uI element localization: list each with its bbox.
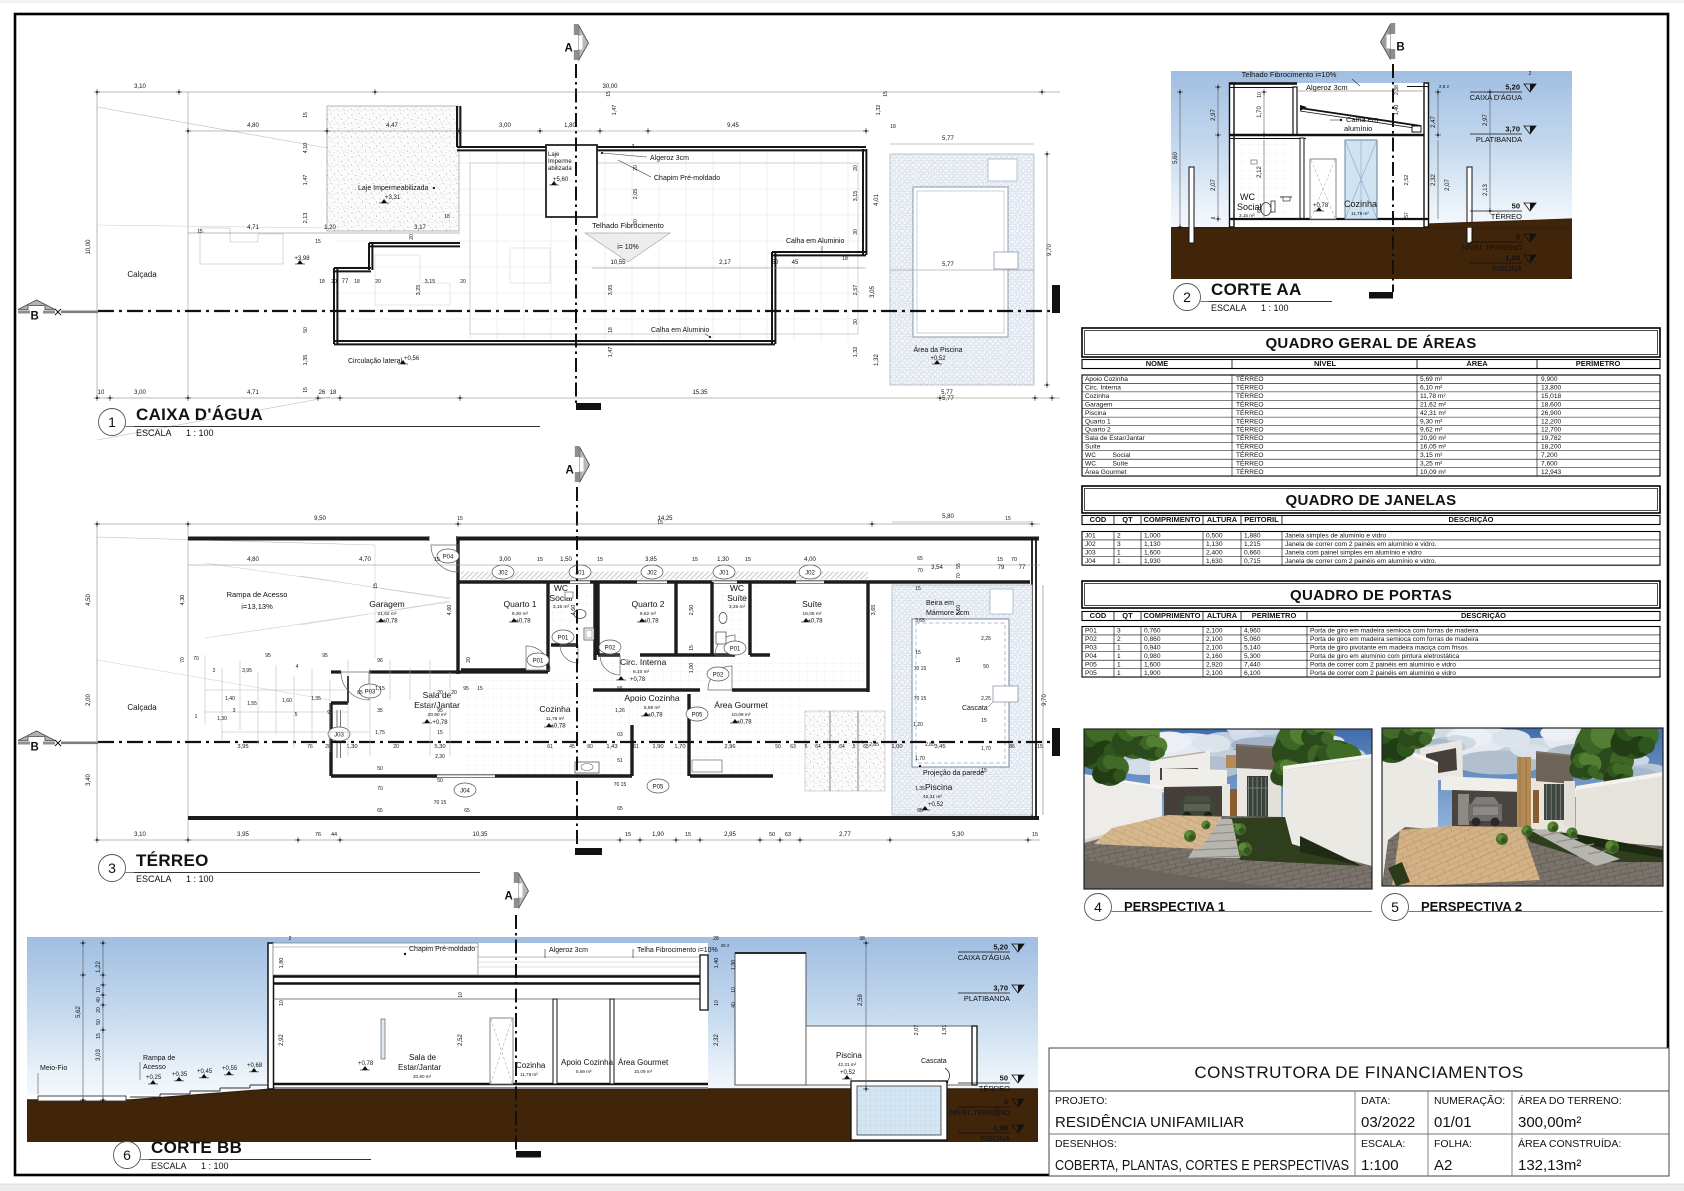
- svg-text:0,980: 0,980: [1144, 653, 1161, 660]
- svg-text:10,09 m²: 10,09 m²: [634, 1069, 653, 1074]
- svg-text:1,930: 1,930: [1144, 558, 1161, 565]
- svg-text:18: 18: [354, 279, 360, 285]
- svg-text:10,09 m²: 10,09 m²: [1420, 469, 1447, 476]
- svg-text:Calha em Aluminio: Calha em Aluminio: [651, 327, 709, 334]
- svg-text:77: 77: [1019, 565, 1026, 571]
- svg-text:Janela de correr com 2 painéis: Janela de correr com 2 painéis em alumín…: [1285, 541, 1437, 548]
- svg-text:3,03: 3,03: [96, 1049, 102, 1061]
- svg-text:J02: J02: [1085, 541, 1096, 548]
- svg-text:1,80: 1,80: [279, 958, 285, 969]
- svg-text:Telha Fibrocimento i=10%: Telha Fibrocimento i=10%: [637, 947, 718, 954]
- svg-text:5: 5: [853, 744, 856, 750]
- svg-text:16,05 m²: 16,05 m²: [803, 611, 822, 617]
- svg-text:2,13: 2,13: [1483, 184, 1489, 196]
- svg-text:6,10 m²: 6,10 m²: [1420, 385, 1443, 392]
- svg-text:CAIXA D'ÁGUA: CAIXA D'ÁGUA: [136, 405, 263, 424]
- svg-text:J01: J01: [719, 570, 729, 576]
- svg-text:03/2022: 03/2022: [1361, 1114, 1415, 1131]
- svg-text:TÉRREO: TÉRREO: [1236, 425, 1263, 434]
- svg-text:NÍVEL TERRENO: NÍVEL TERRENO: [1462, 243, 1522, 252]
- svg-text:2,47: 2,47: [1431, 116, 1437, 128]
- svg-text:5: 5: [829, 744, 832, 750]
- svg-text:9,30 m²: 9,30 m²: [512, 611, 529, 617]
- svg-text:4,47: 4,47: [386, 123, 398, 129]
- svg-text:P05: P05: [653, 784, 664, 790]
- svg-text:3,40: 3,40: [86, 774, 92, 786]
- svg-text:1,35: 1,35: [311, 696, 321, 702]
- svg-text:9,900: 9,900: [1541, 376, 1558, 383]
- svg-text:2,97: 2,97: [1211, 109, 1217, 121]
- svg-text:2: 2: [1117, 533, 1121, 540]
- svg-text:50: 50: [303, 327, 309, 333]
- svg-text:1,215: 1,215: [1244, 541, 1261, 548]
- svg-text:PLATIBANDA: PLATIBANDA: [964, 994, 1010, 1003]
- svg-text:Sala de Estar/Jantar: Sala de Estar/Jantar: [1085, 435, 1146, 442]
- svg-text:63: 63: [785, 832, 791, 838]
- svg-text:3,95: 3,95: [242, 668, 252, 674]
- svg-text:60: 60: [1257, 207, 1263, 213]
- svg-text:Garagem: Garagem: [369, 599, 404, 609]
- svg-text:2,12: 2,12: [1257, 166, 1263, 178]
- svg-text:P02: P02: [1085, 636, 1097, 643]
- svg-text:Porta de giro em madeira semio: Porta de giro em madeira semioca com for…: [1310, 628, 1479, 635]
- svg-text:15,018: 15,018: [1541, 393, 1562, 400]
- svg-text:01/01: 01/01: [1434, 1114, 1472, 1131]
- svg-text:1,000: 1,000: [1144, 533, 1161, 540]
- svg-text:2,07: 2,07: [1445, 179, 1451, 191]
- svg-text:PLATIBANDA: PLATIBANDA: [1476, 135, 1522, 144]
- svg-text:CAIXA D'ÁGUA: CAIXA D'ÁGUA: [1470, 93, 1522, 102]
- svg-text:Quarto 2: Quarto 2: [1085, 427, 1111, 434]
- svg-text:2,100: 2,100: [1206, 670, 1223, 677]
- svg-text:2,38: 2,38: [1394, 85, 1400, 95]
- svg-text:1,47: 1,47: [608, 347, 614, 358]
- svg-text:Quarto 2: Quarto 2: [631, 599, 664, 609]
- svg-text:1 : 100: 1 : 100: [1261, 303, 1289, 313]
- svg-text:Área Gourmet: Área Gourmet: [618, 1058, 669, 1067]
- svg-text:Telhado Fibrocimento: Telhado Fibrocimento: [592, 221, 664, 230]
- svg-text:6: 6: [123, 1147, 131, 1163]
- svg-text:20: 20: [633, 165, 639, 171]
- svg-text:1,70: 1,70: [915, 756, 925, 762]
- svg-text:18,200: 18,200: [1541, 444, 1562, 451]
- svg-text:3,05: 3,05: [870, 286, 876, 298]
- svg-text:CÓD: CÓD: [1090, 611, 1107, 620]
- svg-text:QUADRO DE PORTAS: QUADRO DE PORTAS: [1290, 587, 1452, 604]
- svg-text:1,30: 1,30: [717, 557, 729, 563]
- svg-text:0,760: 0,760: [1144, 628, 1161, 635]
- svg-text:+0,78: +0,78: [643, 619, 659, 625]
- svg-text:1: 1: [1117, 558, 1121, 565]
- svg-text:Rampa de Acesso: Rampa de Acesso: [227, 590, 288, 599]
- svg-text:76: 76: [307, 744, 313, 750]
- svg-text:85: 85: [357, 690, 363, 696]
- svg-text:0,660: 0,660: [1244, 550, 1261, 557]
- svg-text:2,59: 2,59: [858, 994, 864, 1006]
- svg-text:1,80: 1,80: [564, 123, 576, 129]
- svg-text:30: 30: [853, 319, 859, 325]
- svg-text:0,860: 0,860: [1144, 636, 1161, 643]
- svg-text:10: 10: [1257, 92, 1263, 98]
- svg-text:J01: J01: [1085, 533, 1096, 540]
- svg-text:abilizada: abilizada: [548, 166, 572, 172]
- svg-text:Janela com painel simples em a: Janela com painel simples em alumínio e …: [1285, 550, 1422, 557]
- svg-text:42,31 m²: 42,31 m²: [923, 794, 942, 800]
- svg-text:15: 15: [625, 832, 631, 838]
- svg-text:50: 50: [437, 778, 443, 784]
- svg-text:45: 45: [792, 260, 799, 266]
- svg-text:1,55: 1,55: [247, 701, 257, 707]
- svg-text:15: 15: [981, 718, 987, 724]
- svg-text:3,10: 3,10: [134, 84, 146, 90]
- svg-text:WC Social: WC Social: [1085, 452, 1131, 459]
- svg-text:Quarto 1: Quarto 1: [503, 599, 536, 609]
- svg-text:+0,78: +0,78: [630, 677, 646, 683]
- svg-text:9,62 m²: 9,62 m²: [640, 611, 657, 617]
- svg-text:Chapim Pré-moldado: Chapim Pré-moldado: [409, 946, 475, 953]
- svg-text:0: 0: [1516, 233, 1520, 242]
- svg-text:11,78 m²: 11,78 m²: [1420, 393, 1446, 400]
- svg-text:20: 20: [393, 744, 399, 750]
- svg-text:3,70: 3,70: [993, 984, 1008, 993]
- svg-text:61: 61: [547, 744, 553, 750]
- svg-text:Imperme: Imperme: [548, 159, 572, 165]
- svg-text:+0,78: +0,78: [550, 724, 566, 730]
- svg-text:3,95: 3,95: [237, 832, 249, 838]
- svg-text:40: 40: [96, 997, 102, 1003]
- svg-text:15: 15: [1005, 516, 1011, 522]
- svg-text:3,15: 3,15: [853, 191, 859, 202]
- svg-text:FOLHA:: FOLHA:: [1434, 1138, 1472, 1150]
- svg-text:50: 50: [1000, 1074, 1008, 1083]
- svg-text:Laje: Laje: [548, 152, 560, 158]
- svg-text:10: 10: [279, 1000, 285, 1006]
- svg-text:Janela de correr com 2 painéis: Janela de correr com 2 painéis em alumín…: [1285, 558, 1437, 565]
- svg-text:76: 76: [315, 832, 321, 838]
- svg-text:1 : 100: 1 : 100: [201, 1161, 229, 1171]
- svg-text:NOME: NOME: [1146, 359, 1169, 368]
- svg-text:1,32: 1,32: [876, 105, 882, 116]
- svg-text:3,95: 3,95: [237, 744, 248, 750]
- svg-text:1: 1: [195, 714, 198, 720]
- svg-text:3,15 m²: 3,15 m²: [553, 604, 570, 610]
- svg-text:7,600: 7,600: [1541, 460, 1558, 467]
- svg-text:15: 15: [1037, 744, 1043, 750]
- svg-text:11,78 m²: 11,78 m²: [1351, 211, 1369, 216]
- svg-text:70: 70: [180, 657, 186, 663]
- svg-text:1,20: 1,20: [913, 722, 923, 728]
- svg-text:3: 3: [632, 144, 635, 150]
- svg-text:Porta de correr com 2 painéis: Porta de correr com 2 painéis em alumíni…: [1310, 661, 1456, 668]
- svg-text:alumínio: alumínio: [1344, 124, 1372, 133]
- svg-text:1,75: 1,75: [375, 730, 385, 736]
- svg-text:2,92: 2,92: [279, 1034, 285, 1046]
- svg-text:2,05: 2,05: [633, 189, 639, 200]
- svg-text:TÉRREO: TÉRREO: [1236, 391, 1263, 400]
- svg-text:65: 65: [464, 808, 470, 814]
- svg-text:20: 20: [633, 219, 639, 225]
- svg-text:J03: J03: [334, 732, 344, 738]
- svg-text:0,715: 0,715: [1244, 558, 1261, 565]
- svg-text:PERÍMETRO: PERÍMETRO: [1576, 359, 1621, 368]
- svg-text:64: 64: [839, 744, 845, 750]
- svg-text:50: 50: [983, 664, 989, 670]
- svg-text:TÉRREO: TÉRREO: [1236, 442, 1263, 451]
- svg-text:+0,55: +0,55: [222, 1066, 238, 1072]
- svg-text:+0,78: +0,78: [432, 720, 448, 726]
- svg-text:Cozinha: Cozinha: [539, 704, 570, 714]
- svg-text:3,00: 3,00: [499, 557, 511, 563]
- svg-text:5,77: 5,77: [942, 136, 954, 142]
- svg-text:18,600: 18,600: [1541, 401, 1562, 408]
- svg-text:96: 96: [377, 658, 383, 664]
- svg-text:15: 15: [915, 650, 921, 656]
- svg-text:A: A: [504, 891, 512, 903]
- svg-text:+0,52: +0,52: [840, 1070, 856, 1076]
- svg-text:7,200: 7,200: [1541, 452, 1558, 459]
- svg-text:ESCALA: ESCALA: [151, 1161, 187, 1171]
- svg-text:2,8 2: 2,8 2: [1439, 84, 1450, 89]
- svg-text:2,95: 2,95: [724, 832, 736, 838]
- svg-text:3,25: 3,25: [416, 285, 422, 296]
- svg-text:3,65: 3,65: [871, 605, 877, 616]
- svg-text:2,85: 2,85: [869, 742, 879, 748]
- svg-text:86: 86: [1009, 744, 1015, 750]
- svg-text:70: 70: [956, 573, 962, 579]
- svg-text:CORTE BB: CORTE BB: [151, 1138, 242, 1157]
- svg-text:1: 1: [1117, 661, 1121, 668]
- svg-text:QT: QT: [1122, 515, 1133, 524]
- svg-text:1,52: 1,52: [995, 1107, 1001, 1118]
- svg-text:2,100: 2,100: [1206, 628, 1223, 635]
- svg-text:1,600: 1,600: [1144, 550, 1161, 557]
- svg-text:10: 10: [458, 992, 464, 998]
- svg-text:85: 85: [917, 808, 923, 814]
- svg-text:Calha em: Calha em: [1346, 115, 1378, 124]
- svg-text:Área da Piscina: Área da Piscina: [913, 345, 962, 354]
- svg-text:1,70: 1,70: [981, 746, 991, 752]
- svg-text:TÉRREO: TÉRREO: [1236, 458, 1263, 467]
- svg-text:4,71: 4,71: [247, 225, 259, 231]
- svg-text:15: 15: [315, 239, 321, 245]
- svg-text:70: 70: [1011, 557, 1017, 563]
- svg-text:5,69 m²: 5,69 m²: [644, 705, 661, 711]
- svg-text:1,32: 1,32: [874, 354, 880, 366]
- svg-text:ESCALA: ESCALA: [136, 428, 172, 438]
- svg-text:20: 20: [451, 690, 457, 696]
- svg-text:5,140: 5,140: [1244, 645, 1261, 652]
- svg-text:Algeroz 3cm: Algeroz 3cm: [549, 947, 588, 954]
- svg-text:+0,78: +0,78: [647, 713, 663, 719]
- svg-text:21,62 m²: 21,62 m²: [378, 611, 397, 617]
- svg-text:Telhado Fibrocimento i=10%: Telhado Fibrocimento i=10%: [1242, 70, 1337, 79]
- svg-text:10,00: 10,00: [86, 239, 92, 255]
- svg-text:65: 65: [863, 744, 869, 750]
- svg-text:TÉRREO: TÉRREO: [1491, 212, 1522, 221]
- svg-text:1,91: 1,91: [942, 1025, 948, 1036]
- svg-text:Circulação lateral: Circulação lateral: [348, 358, 403, 365]
- svg-text:TÉRREO: TÉRREO: [1236, 467, 1263, 476]
- svg-text:2,400: 2,400: [1206, 550, 1223, 557]
- svg-text:1,26: 1,26: [615, 708, 625, 714]
- svg-text:2,07: 2,07: [1211, 179, 1217, 191]
- svg-text:15: 15: [689, 645, 695, 651]
- svg-text:1: 1: [1117, 550, 1121, 557]
- svg-text:95: 95: [463, 686, 469, 692]
- svg-text:J02: J02: [805, 570, 815, 576]
- svg-text:QUADRO DE JANELAS: QUADRO DE JANELAS: [1286, 492, 1457, 509]
- svg-text:15: 15: [657, 520, 663, 526]
- svg-text:20: 20: [466, 657, 472, 663]
- svg-text:1,630: 1,630: [1206, 558, 1223, 565]
- svg-text:15: 15: [981, 768, 987, 774]
- svg-text:12,943: 12,943: [1541, 469, 1562, 476]
- svg-text:9,45: 9,45: [727, 123, 739, 129]
- svg-text:Meio-Fio: Meio-Fio: [40, 1065, 67, 1072]
- svg-text:15: 15: [606, 91, 612, 97]
- svg-text:+3,31: +3,31: [385, 195, 401, 201]
- svg-text:Beira em: Beira em: [926, 600, 954, 607]
- svg-text:95: 95: [322, 653, 328, 659]
- svg-text:i= 10%: i= 10%: [617, 244, 639, 251]
- svg-text:1 : 100: 1 : 100: [186, 874, 214, 884]
- svg-text:15: 15: [437, 730, 443, 736]
- svg-text:15: 15: [883, 91, 889, 97]
- svg-text:50: 50: [96, 1019, 102, 1025]
- svg-text:03: 03: [617, 732, 623, 738]
- svg-text:15: 15: [685, 832, 691, 838]
- svg-text:DATA:: DATA:: [1361, 1095, 1390, 1107]
- svg-text:4,00: 4,00: [804, 557, 816, 563]
- svg-text:30: 30: [853, 229, 859, 235]
- svg-text:20: 20: [460, 279, 466, 285]
- svg-text:70: 70: [377, 786, 383, 792]
- svg-text:P02: P02: [605, 645, 616, 651]
- svg-text:44: 44: [331, 832, 337, 838]
- svg-text:1,00: 1,00: [891, 744, 902, 750]
- svg-text:Área Gourmet: Área Gourmet: [1085, 467, 1127, 476]
- svg-text:Cascata: Cascata: [962, 705, 988, 712]
- svg-text:P04: P04: [1085, 653, 1097, 660]
- svg-text:5: 5: [805, 744, 808, 750]
- svg-text:P01: P01: [730, 646, 741, 652]
- svg-text:4,80: 4,80: [247, 123, 259, 129]
- svg-text:2,30: 2,30: [435, 754, 445, 760]
- svg-text:0: 0: [1004, 1098, 1008, 1107]
- svg-text:1,30: 1,30: [217, 716, 227, 722]
- svg-text:1,70: 1,70: [674, 744, 685, 750]
- svg-text:+0,78: +0,78: [1313, 203, 1329, 209]
- svg-text:28: 28: [713, 936, 719, 942]
- svg-text:+0,52: +0,52: [928, 802, 944, 808]
- svg-text:2: 2: [1183, 289, 1191, 305]
- svg-text:B: B: [31, 311, 39, 323]
- svg-text:A2: A2: [1434, 1157, 1452, 1174]
- svg-text:15: 15: [303, 112, 309, 118]
- svg-text:15: 15: [745, 557, 751, 563]
- svg-text:1,35: 1,35: [915, 786, 925, 792]
- svg-text:1,20: 1,20: [324, 225, 336, 231]
- svg-text:DESCRIÇÃO: DESCRIÇÃO: [1448, 515, 1493, 524]
- svg-text:20: 20: [96, 1007, 102, 1013]
- svg-text:2,96: 2,96: [724, 744, 735, 750]
- svg-text:A: A: [565, 465, 573, 477]
- svg-text:3,10: 3,10: [134, 832, 146, 838]
- svg-text:1,40: 1,40: [1394, 105, 1400, 116]
- svg-text:12,700: 12,700: [1541, 427, 1562, 434]
- svg-text:1: 1: [1117, 645, 1121, 652]
- svg-text:4,10: 4,10: [303, 143, 309, 154]
- svg-text:WC: WC: [1240, 192, 1255, 202]
- svg-text:TÉRREO: TÉRREO: [1236, 408, 1263, 417]
- svg-text:2,52: 2,52: [1404, 175, 1410, 186]
- svg-text:Suíte: Suíte: [1085, 444, 1101, 451]
- svg-text:WC: WC: [554, 583, 568, 593]
- svg-text:5,77: 5,77: [942, 396, 954, 402]
- svg-text:20: 20: [331, 279, 337, 285]
- svg-text:4,30: 4,30: [180, 595, 186, 606]
- svg-text:4,80: 4,80: [247, 557, 259, 563]
- svg-text:45: 45: [569, 744, 575, 750]
- svg-text:4,960: 4,960: [1244, 628, 1261, 635]
- svg-text:Suíte: Suíte: [802, 599, 822, 609]
- svg-text:QT: QT: [1122, 611, 1133, 620]
- svg-text:Garagem: Garagem: [1085, 401, 1113, 408]
- svg-text:CAIXA D'ÁGUA: CAIXA D'ÁGUA: [958, 953, 1010, 962]
- svg-text:5,69 m²: 5,69 m²: [1420, 376, 1443, 383]
- svg-text:Calha em Aluminio: Calha em Aluminio: [786, 238, 844, 245]
- svg-text:55: 55: [956, 563, 962, 569]
- svg-text:Cozinha: Cozinha: [516, 1061, 546, 1070]
- svg-text:95: 95: [437, 708, 443, 714]
- svg-text:95: 95: [327, 710, 333, 716]
- svg-text:3: 3: [108, 860, 116, 876]
- svg-text:+0,78: +0,78: [358, 1061, 374, 1067]
- svg-text:70: 70: [193, 656, 199, 662]
- svg-text:15: 15: [956, 657, 962, 663]
- svg-text:Porta de correr com 2 painéis: Porta de correr com 2 painéis em alumíni…: [1310, 670, 1456, 677]
- svg-text:J04: J04: [1085, 558, 1096, 565]
- svg-text:Chapim Pré-moldado: Chapim Pré-moldado: [654, 175, 720, 182]
- svg-text:1,00: 1,00: [689, 663, 695, 674]
- svg-text:2,100: 2,100: [1206, 636, 1223, 643]
- svg-text:79: 79: [998, 565, 1005, 571]
- svg-text:TÉRREO: TÉRREO: [1236, 416, 1263, 425]
- svg-text:18: 18: [330, 390, 337, 396]
- svg-text:ALTURA: ALTURA: [1207, 515, 1238, 524]
- svg-text:1,15: 1,15: [375, 686, 385, 692]
- svg-text:Calçada: Calçada: [127, 703, 157, 712]
- svg-text:P04: P04: [443, 554, 454, 560]
- svg-text:2,32: 2,32: [714, 1034, 720, 1046]
- svg-text:2,25: 2,25: [981, 696, 991, 702]
- svg-text:J03: J03: [1085, 550, 1096, 557]
- svg-text:5: 5: [1391, 899, 1399, 915]
- svg-text:1,43: 1,43: [606, 744, 617, 750]
- svg-text:15,35: 15,35: [692, 390, 708, 396]
- svg-text:3,65: 3,65: [915, 618, 925, 624]
- svg-text:+0,52: +0,52: [930, 356, 946, 362]
- svg-text:42,31 m²: 42,31 m²: [838, 1062, 857, 1067]
- svg-text:15: 15: [477, 686, 483, 692]
- svg-text:70 15: 70 15: [434, 800, 447, 806]
- svg-text:40: 40: [731, 1002, 737, 1008]
- svg-text:50: 50: [772, 260, 779, 266]
- svg-text:50: 50: [769, 832, 775, 838]
- svg-text:20,90 m²: 20,90 m²: [413, 1074, 432, 1079]
- svg-text:15: 15: [997, 557, 1003, 563]
- svg-text:P02: P02: [713, 672, 724, 678]
